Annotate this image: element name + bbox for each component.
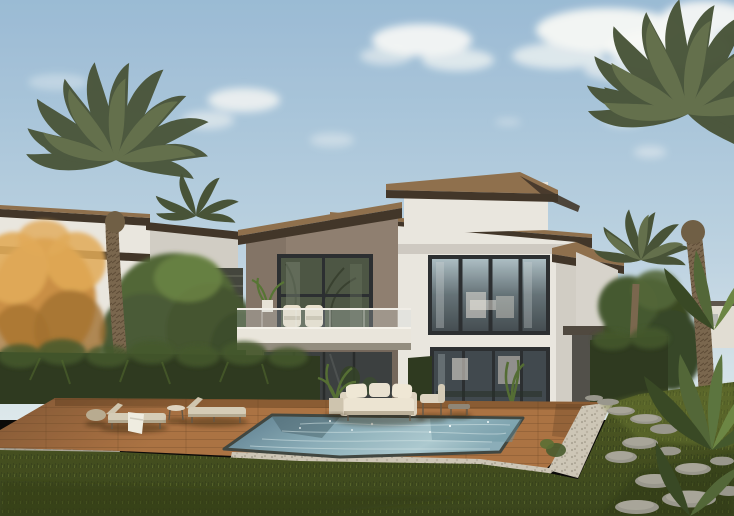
light-wash-overlay xyxy=(0,0,734,516)
villa-render-image xyxy=(0,0,734,516)
